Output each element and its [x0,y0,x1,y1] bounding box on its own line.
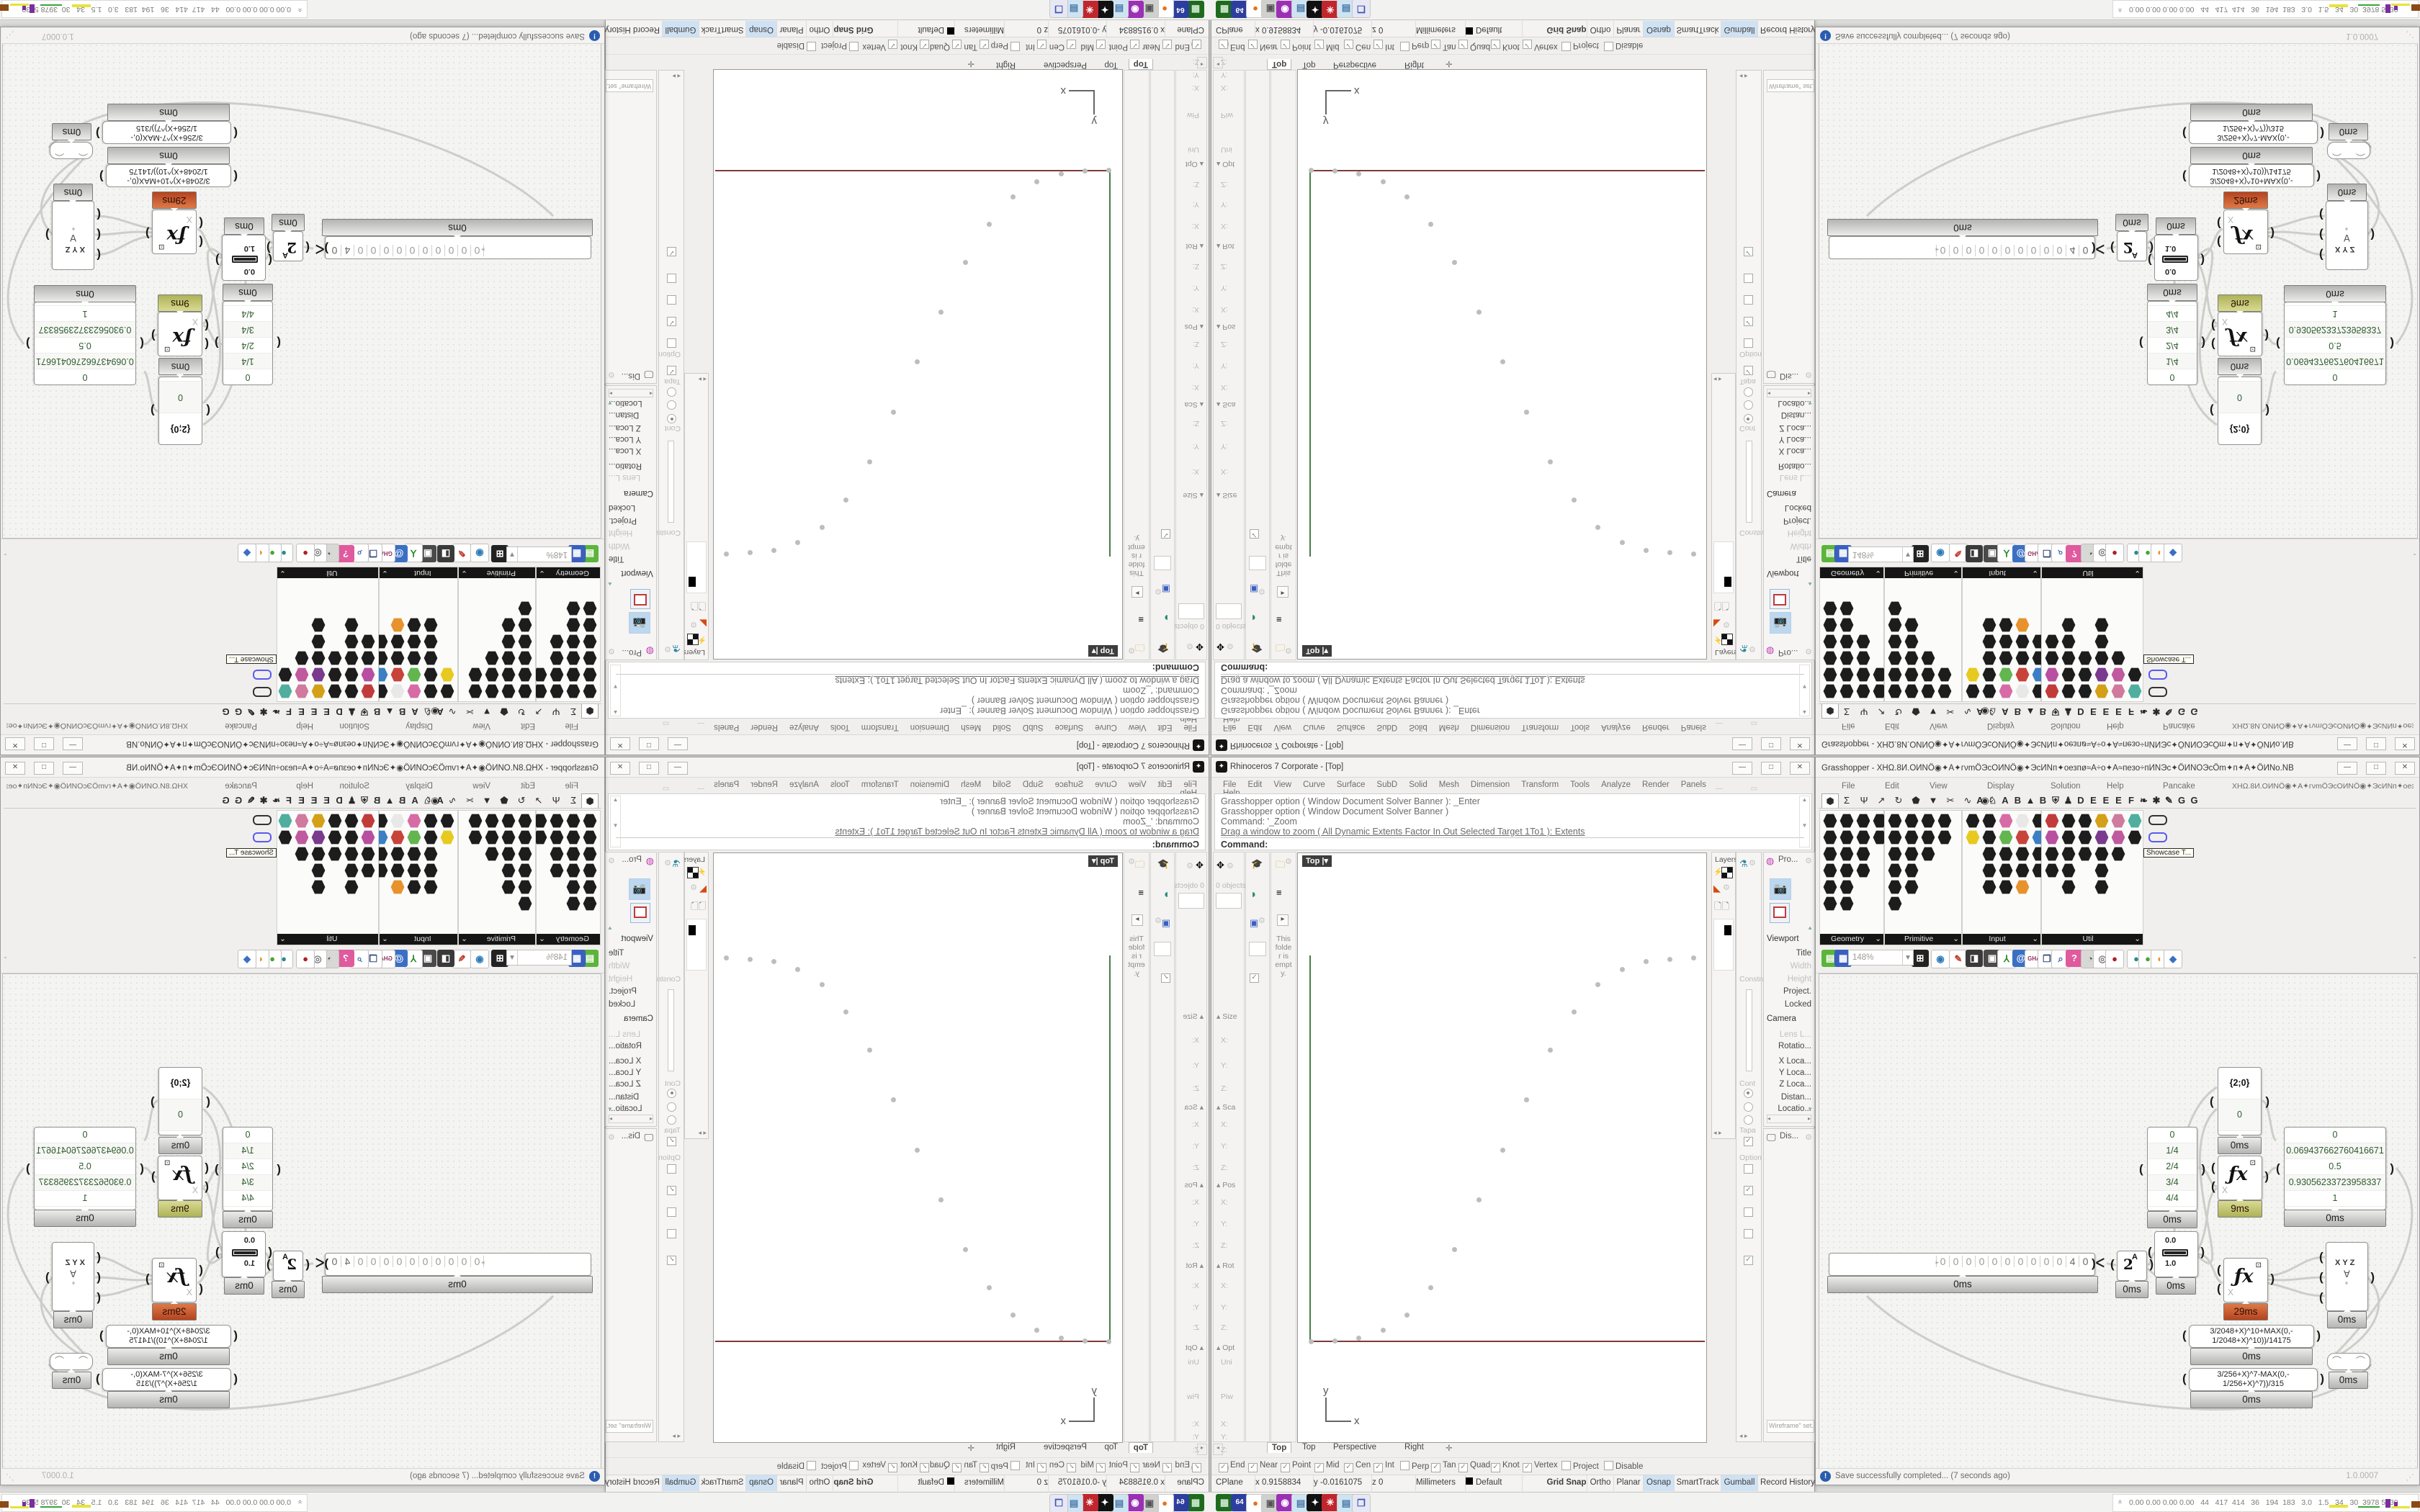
gh-plugin-tab-8[interactable]: D [2075,705,2087,719]
component-icon[interactable] [566,651,581,665]
status-x[interactable]: x 0.9158834 [1251,21,1314,37]
gh-category-tab-5[interactable]: ⬟ [1908,705,1924,719]
taskbar-icon-red-badge[interactable]: ✳ [1081,1494,1098,1511]
component-icon[interactable] [566,814,581,828]
scroll-up-icon[interactable]: ▲ [607,924,613,931]
viewport-tab-top[interactable]: Top [1129,1442,1153,1453]
constraint-check-4[interactable] [667,295,676,305]
monitor-icon[interactable]: ▣⚙ [1250,583,1258,595]
constraint-check-4[interactable] [1744,1207,1753,1217]
component-icon[interactable] [1904,880,1919,894]
osnap-quad[interactable]: ✓Quad [1458,1461,1490,1472]
gh-plugin-tab-7[interactable]: ♟ [346,705,358,719]
constraint-check-2[interactable] [667,338,676,348]
component-icon[interactable] [361,684,375,698]
component-icon[interactable] [390,880,405,894]
zoom-level-input[interactable]: 148%▾ [1848,950,1914,966]
gh-node-panel[interactable]: 00.0694376627604166710.50.93056233723958… [2284,1127,2386,1210]
property-row-distan[interactable]: Distan... [1781,410,1811,419]
gh-node-relay[interactable]: ⌒⌒ [50,1353,93,1370]
status-z[interactable]: z 0 [1004,1475,1052,1491]
component-icon[interactable] [1823,684,1837,698]
gh-plugin-tab-5[interactable]: B [372,705,383,719]
menu-item-solid[interactable]: Solid [987,780,1017,789]
constraint-radio-1[interactable] [667,1089,676,1098]
menu-item-surface[interactable]: Surface [1331,723,1371,732]
component-icon[interactable] [361,830,375,845]
component-icon[interactable] [423,667,438,682]
gh-menu-file[interactable]: File [565,721,578,730]
gh-plugin-tab-14[interactable]: ✱ [2151,705,2162,719]
component-icon[interactable] [295,814,309,828]
menu-item-tools[interactable]: Tools [1564,723,1595,732]
layer-color-icon[interactable]: ◣⚙ [1713,618,1721,629]
gh-plugin-tab-7[interactable]: ♟ [2063,705,2074,719]
component-icon[interactable] [1888,880,1902,894]
glasses-icon[interactable] [253,687,272,697]
rhino-titlebar[interactable]: ✦ Rhinoceros 7 Corporate - [Top] — □ ✕ [1211,734,1814,755]
component-icon[interactable] [440,667,454,682]
minimize-button[interactable]: — [668,762,688,775]
component-icon[interactable] [311,634,326,649]
gh-plugin-tab-10[interactable]: E [2100,793,2112,807]
component-icon[interactable] [1904,651,1919,665]
component-icon[interactable] [1937,684,1952,698]
gh-plugin-tab-16[interactable]: G [233,793,244,807]
osnap-quad[interactable]: ✓Quad [1458,40,1490,51]
expand-button[interactable]: ▸ [1131,914,1143,926]
component-icon[interactable] [390,847,405,861]
osnap-mid[interactable]: ✓Mid [1314,1461,1340,1472]
component-icon[interactable] [2078,651,2092,665]
gh-plugin-tab-6[interactable]: ⛨ [359,793,370,807]
menu-item-view[interactable]: View [1268,780,1297,789]
gh-menu-help[interactable]: Help [296,721,313,730]
property-row-camera[interactable]: Camera [609,489,653,498]
taskbar-icon-purple-app[interactable]: ◉ [1126,1,1144,18]
component-icon[interactable] [2094,814,2109,828]
constraint-icon[interactable]: ⚗⚙ [672,858,681,870]
component-icon[interactable] [1904,830,1919,845]
gh-plugin-tab-16[interactable]: G [233,705,244,719]
component-icon[interactable] [583,896,597,911]
toggle-grid-snap[interactable]: Grid Snap [1546,21,1587,37]
gh-category-tab-3[interactable]: ↗ [1873,705,1889,719]
menu-item-panels[interactable]: Panels [1675,780,1712,789]
viewport-top[interactable]: Top |▾ y x [1297,852,1707,1443]
new-viewport-tab[interactable]: ✛ [1441,1442,1457,1454]
component-icon[interactable] [1921,814,1935,828]
scroll-up-icon[interactable]: ▲ [607,581,613,588]
status-millimeters[interactable]: Millimeters [1412,1475,1466,1491]
constraint-check-3[interactable]: ✓ [667,1186,676,1195]
constraint-check-6[interactable]: ✓ [1744,1256,1753,1265]
command-scrollbar[interactable]: ▲▼ [610,665,621,716]
component-icon[interactable] [361,667,375,682]
component-icon[interactable] [485,830,499,845]
constraint-check-5[interactable] [667,274,676,283]
gh-plugin-tab-17[interactable]: G [2189,793,2200,807]
tool-check[interactable]: ✓ [1250,973,1259,983]
gh-node-expr[interactable]: 3/2048+X)^10+MAX(0,- 1/2048+X)^10))/1417… [106,164,231,187]
gh-menu-view[interactable]: View [472,782,490,791]
component-icon[interactable] [501,651,516,665]
layer-swatch[interactable] [689,577,696,587]
osnap-near[interactable]: ✓Near [1142,40,1172,51]
ribbon-panel-label[interactable]: Input⌄ [380,567,457,578]
osnap-vertex[interactable]: ✓Vertex [862,1461,897,1472]
viewport-title[interactable]: Top |▾ [1088,855,1118,867]
toolbar-scroll[interactable]: ⌄ [2412,552,2417,559]
chevron-up-icon[interactable]: » [296,1500,305,1504]
gh-menu-file[interactable]: File [1842,782,1855,791]
gh-node-fx[interactable]: ƒx⊡X(() [2218,312,2262,356]
osnap-cen[interactable]: ✓Cen [1344,40,1371,51]
minimize-button[interactable]: — [1732,762,1752,775]
component-icon[interactable] [1937,830,1952,845]
constraint-check-4[interactable] [1744,295,1753,305]
component-icon[interactable] [423,880,438,894]
toggle-smarttrack[interactable]: SmartTrack [699,1475,745,1491]
gh-tool-speaker[interactable]: ◨ [437,545,454,562]
gh-menu-display[interactable]: Display [405,782,433,791]
status-x[interactable]: x 0.9158834 [1251,1475,1314,1491]
osnap-knot[interactable]: ✓Knot [1491,1461,1520,1472]
component-icon[interactable] [390,814,405,828]
camera-button[interactable]: 📷 [629,612,650,634]
osnap-tan[interactable]: ✓Tan [964,1461,989,1472]
menu-item-subd[interactable]: SubD [1017,723,1049,732]
property-row-title[interactable]: Title [609,949,624,958]
gh-tool-zoom-extents[interactable]: ⊞ [1912,950,1929,967]
component-icon[interactable] [501,863,516,878]
gh-node-panel[interactable]: 00.0694376627604166710.50.93056233723958… [2284,302,2386,385]
boxedit-input[interactable] [1216,603,1242,619]
menu-item-view[interactable]: View [1268,723,1297,732]
camera-button[interactable]: 📷 [629,878,650,900]
component-icon[interactable] [485,814,499,828]
layer-list[interactable] [686,541,707,593]
folder-icon[interactable]: 🗀⚙ [1135,638,1144,654]
minimize-button[interactable]: — [2337,762,2357,775]
gh-node-fx[interactable]: ƒx⊡X(() [2223,210,2268,254]
viewport-title[interactable]: Top |▾ [1302,645,1332,657]
cap-icon[interactable]: 🎓 [1251,642,1263,654]
gh-plugin-tab-5[interactable]: B [2038,793,2049,807]
component-icon[interactable] [2015,634,2030,649]
component-icon[interactable] [311,651,326,665]
osnap-knot[interactable]: ✓Knot [1491,40,1520,51]
minimize-button[interactable]: — [1732,737,1752,750]
constraint-check-2[interactable] [667,1164,676,1174]
tab-scroll-left[interactable]: ◂ [1213,1444,1223,1455]
property-row-camera[interactable]: Camera [1767,1014,1811,1023]
component-icon[interactable] [1823,847,1837,861]
component-icon[interactable] [423,618,438,632]
command-scrollbar[interactable]: ▲▼ [610,796,621,847]
component-icon[interactable] [344,667,359,682]
constraint-radio-3[interactable] [667,387,676,397]
gh-canvas[interactable]: 000000000040▸)ᐸ0ms2A()0ms0.01.0()0msƒx⊡X… [2,43,601,539]
close-button[interactable]: ✕ [1790,762,1810,775]
gh-titlebar[interactable]: Grasshopper - ХНΩ.8И.ОИNÖ◉✦А✦гνmÖЭсОИNÖ◉… [1816,734,2419,755]
menu-item-edit[interactable]: Edit [1152,780,1178,789]
gh-titlebar[interactable]: Grasshopper - ХНΩ.8И.ОИNÖ◉✦А✦гνmÖЭсОИNÖ◉… [1,757,604,778]
command-area[interactable]: Grasshopper option ( Window Document Sol… [1214,793,1812,850]
component-icon[interactable] [2061,847,2076,861]
gh-node-fx[interactable]: ƒx⊡X(() [152,210,197,254]
toggle-osnap[interactable]: Osnap [745,21,776,37]
command-area[interactable]: Grasshopper option ( Window Document Sol… [608,662,1206,719]
scroll-down-icon[interactable]: ▼ [1807,400,1813,406]
component-icon[interactable] [2061,684,2076,698]
gh-plugin-tab-11[interactable]: E [2113,793,2125,807]
monitor-icon[interactable]: ▣⚙ [1162,917,1170,929]
resize-grip[interactable]: ⋰ [2406,1472,2416,1482]
checker-icon[interactable] [687,634,699,645]
component-icon[interactable] [1904,667,1919,682]
menu-item-mesh[interactable]: Mesh [1433,723,1465,732]
gear-icon[interactable]: ⚙ [1805,370,1812,379]
gh-menu-help[interactable]: Help [2107,782,2124,791]
gh-tool-bake[interactable]: ● [296,950,315,968]
component-icon[interactable] [1823,667,1837,682]
ribbon-panel-label[interactable]: Geometry⌄ [537,934,600,945]
gh-menu-solution[interactable]: Solution [339,782,369,791]
component-icon[interactable] [566,667,581,682]
component-icon[interactable] [1888,896,1902,911]
component-icon[interactable] [550,651,564,665]
component-icon[interactable] [390,618,405,632]
menu-item-mesh[interactable]: Mesh [955,723,987,732]
component-icon[interactable] [311,880,326,894]
gh-plugin-tab-5[interactable]: B [372,793,383,807]
command-prompt[interactable]: Command: [1221,662,1804,675]
component-icon[interactable] [423,684,438,698]
component-icon[interactable] [2045,814,2059,828]
toggle-smarttrack[interactable]: SmartTrack [1675,1475,1721,1491]
gh-category-tab-7[interactable]: ✂ [1942,793,1958,807]
gh-tool-preview-eye[interactable]: ◉ [1931,544,1950,562]
component-icon[interactable] [2128,667,2142,682]
menu-item-curve[interactable]: Curve [1089,723,1123,732]
component-icon[interactable] [1999,684,2013,698]
component-icon[interactable] [583,684,597,698]
component-icon[interactable] [583,814,597,828]
gh-plugin-tab-15[interactable]: ✎ [2164,793,2175,807]
gh-plugin-tab-1[interactable]: ♘ [422,793,434,807]
component-icon[interactable] [407,684,421,698]
toggle-planar[interactable]: Planar [1614,1475,1644,1491]
component-icon[interactable] [1999,634,2013,649]
gh-node-xyz[interactable]: XYZ∀°((() [52,1242,94,1311]
gh-category-tab-1[interactable]: Σ [1839,705,1855,719]
constraint-check-5[interactable] [1744,1229,1753,1238]
property-row-rotatio[interactable]: Rotatio... [1778,462,1811,470]
component-icon[interactable] [1839,618,1854,632]
toggle-ortho[interactable]: Ortho [1587,21,1614,37]
osnap-project[interactable]: Project [821,41,859,51]
constraint-slider[interactable] [668,989,674,1071]
component-icon[interactable] [566,618,581,632]
osnap-project[interactable]: Project [821,1461,859,1471]
component-icon[interactable] [501,830,516,845]
component-icon[interactable] [407,618,421,632]
scroll-down-icon[interactable]: ▼ [1807,1106,1813,1112]
gear-icon[interactable]: ⚙ [1805,856,1812,865]
display-mode-dropdown[interactable]: Wireframe" set..▾ [1767,79,1814,92]
gh-category-tab-7[interactable]: ✂ [462,793,478,807]
property-row-lensl[interactable]: Lens L... [609,1030,640,1039]
gh-node-remap[interactable]: 0.01.0() [222,235,266,281]
folder-icon[interactable]: 🗀⚙ [1276,858,1285,874]
gh-plugin-tab-15[interactable]: ✎ [246,793,257,807]
component-icon[interactable] [2128,684,2142,698]
tool-box[interactable] [1249,556,1266,570]
menu-item-solid[interactable]: Solid [987,723,1017,732]
component-icon[interactable] [2094,863,2109,878]
gh-plugin-tab-2[interactable]: A [409,705,421,719]
ribbon-panel-label[interactable]: Input⌄ [1963,567,2040,578]
component-icon[interactable] [1888,634,1902,649]
status-default[interactable]: Default [1461,1475,1523,1491]
menu-item-render[interactable]: Render [1636,723,1675,732]
gear-icon[interactable]: ⚙ [1805,647,1812,656]
cap-icon[interactable]: 🎓 [1157,642,1169,654]
property-row-title[interactable]: Title [1796,949,1811,958]
property-row-locked[interactable]: Locked [1785,503,1811,512]
menu-item-tools[interactable]: Tools [825,723,856,732]
toggle-record-history[interactable]: Record History [602,21,662,37]
taskbar-icon-floppy-64[interactable]: 64 [1172,1,1189,18]
property-row-rotatio[interactable]: Rotatio... [1778,1042,1811,1050]
property-row-xloca[interactable]: X Loca... [609,446,641,455]
menu-item-file[interactable]: File [1217,723,1242,732]
component-icon[interactable] [328,830,342,845]
glasses-icon[interactable] [253,815,272,825]
component-icon[interactable] [1966,814,1980,828]
component-icon[interactable] [501,667,516,682]
osnap-vertex[interactable]: ✓Vertex [1523,40,1558,51]
hamburger-icon[interactable]: ≡ [1138,887,1144,898]
tool-box[interactable] [1154,942,1171,956]
menu-item-subd[interactable]: SubD [1017,780,1049,789]
component-icon[interactable] [440,814,454,828]
property-row-project[interactable]: Project. [609,987,637,996]
component-icon[interactable] [2061,667,2076,682]
resize-grip[interactable]: ⋰ [5,1472,14,1482]
close-button[interactable]: ✕ [2395,737,2415,750]
gh-plugin-tab-8[interactable]: D [333,705,345,719]
menu-item-surface[interactable]: Surface [1331,780,1371,789]
gh-node-pow[interactable]: 2A() [273,1251,303,1281]
gh-tool-sketch-pen[interactable]: ✎ [452,544,471,562]
menu-item-dimension[interactable]: Dimension [1465,780,1515,789]
gh-category-tab-6[interactable]: ▼ [1925,705,1941,719]
properties-hscroll[interactable]: ◂▸ [1767,1115,1811,1123]
tool-check[interactable]: ✓ [1161,529,1170,539]
osnap-tan[interactable]: ✓Tan [964,40,989,51]
constraint-check-1[interactable]: ✓ [1744,366,1753,375]
component-icon[interactable] [1888,847,1902,861]
component-icon[interactable] [1904,863,1919,878]
component-icon[interactable] [2045,667,2059,682]
gear-icon[interactable]: ⚙ [1805,1133,1812,1142]
status-millimeters[interactable]: Millimeters [954,21,1008,37]
component-icon[interactable] [344,830,359,845]
tool-check[interactable]: ✓ [1161,973,1170,983]
gh-category-tab-2[interactable]: Ψ [1856,793,1872,807]
component-icon[interactable] [485,667,499,682]
component-icon[interactable] [423,830,438,845]
osnap-int[interactable]: ✓Int [1373,40,1394,51]
component-icon[interactable] [550,847,564,861]
component-icon[interactable] [566,880,581,894]
viewframe-button[interactable] [1770,903,1790,923]
gh-plugin-tab-10[interactable]: E [308,705,320,719]
gh-plugin-tab-4[interactable]: ▲ [2025,793,2036,807]
property-row-rotatio[interactable]: Rotatio... [609,462,642,470]
gh-plugin-tab-3[interactable]: B [397,705,408,719]
component-icon[interactable] [1888,601,1902,616]
gh-menu-file[interactable]: File [565,782,578,791]
gh-node-fx[interactable]: ƒx⊡X(() [158,312,202,356]
gh-node-remap[interactable]: 0.01.0() [222,1231,266,1277]
component-icon[interactable] [423,634,438,649]
component-icon[interactable] [566,863,581,878]
viewport-tab-top[interactable]: Top [1100,60,1122,70]
gh-category-tab-5[interactable]: ⬟ [1908,793,1924,807]
property-row-locked[interactable]: Locked [609,1000,635,1009]
layer-swatch[interactable] [1724,925,1731,935]
gh-menu-solution[interactable]: Solution [2051,782,2081,791]
component-icon[interactable] [1839,651,1854,665]
component-icon[interactable] [407,634,421,649]
toolbar-scroll[interactable]: ⌄ [3,552,8,559]
gh-tool-zoom-extents[interactable]: ⊞ [1912,545,1929,562]
minimize-button[interactable]: — [63,737,83,750]
tab-scroll-left[interactable]: ◂ [1213,57,1223,68]
component-icon[interactable] [1937,814,1952,828]
component-icon[interactable] [2045,830,2059,845]
viewport-tab-top[interactable]: Top [1100,1442,1122,1452]
gh-plugin-tab-4[interactable]: ▲ [2025,705,2036,719]
component-icon[interactable] [2045,863,2059,878]
toggle-grid-snap[interactable]: Grid Snap [833,21,874,37]
component-icon[interactable] [328,667,342,682]
gh-category-tab-4[interactable]: ↻ [1891,705,1906,719]
component-icon[interactable] [1856,830,1870,845]
tool-box[interactable] [1249,942,1266,956]
gh-plugin-tab-17[interactable]: G [2189,705,2200,719]
viewport-tab-right[interactable]: Right [1400,60,1428,70]
viewport-tab-top[interactable]: Top [1267,59,1291,70]
gh-plugin-tab-3[interactable]: B [2012,793,2024,807]
tab-scroll-left[interactable]: ◂ [1197,1444,1207,1455]
gh-node-fx[interactable]: ƒx⊡X(() [152,1258,197,1302]
component-icon[interactable] [566,847,581,861]
gh-plugin-tab-1[interactable]: ♘ [1987,705,1999,719]
component-icon[interactable] [344,847,359,861]
property-row-viewport[interactable]: Viewport [609,569,653,577]
gh-tool-preview-eye[interactable]: ◉ [1931,950,1950,968]
component-icon[interactable] [1999,847,2013,861]
status-default[interactable]: Default [1461,21,1523,37]
property-row-project[interactable]: Project. [1783,516,1811,525]
component-icon[interactable] [1888,667,1902,682]
taskbar-icon-capture-green[interactable]: ▦ [1187,1,1204,18]
component-icon[interactable] [2045,684,2059,698]
